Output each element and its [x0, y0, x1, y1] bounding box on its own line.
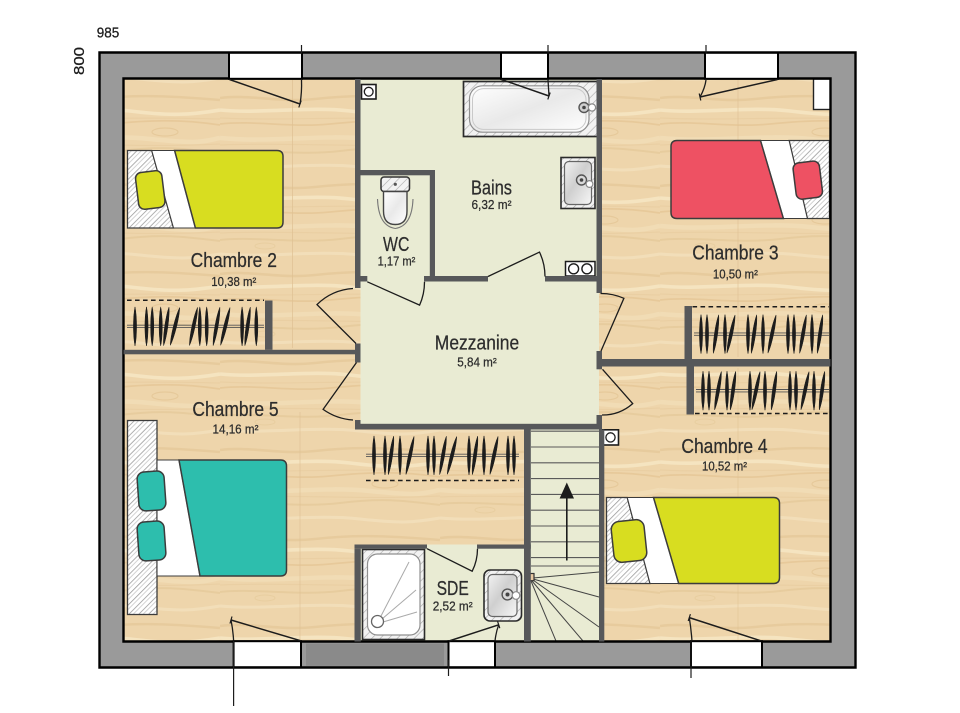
svg-text:10,52 m²: 10,52 m²: [702, 458, 748, 473]
svg-text:Chambre 3: Chambre 3: [692, 241, 778, 264]
svg-text:Chambre 4: Chambre 4: [681, 435, 767, 458]
svg-text:6,32 m²: 6,32 m²: [472, 197, 513, 212]
svg-text:10,38 m²: 10,38 m²: [211, 274, 257, 289]
svg-text:10,50 m²: 10,50 m²: [713, 266, 759, 281]
svg-text:985: 985: [97, 25, 120, 42]
svg-text:SDE: SDE: [437, 577, 469, 600]
svg-text:14,16 m²: 14,16 m²: [213, 421, 260, 436]
svg-text:Chambre 2: Chambre 2: [191, 249, 277, 272]
svg-text:5,84 m²: 5,84 m²: [457, 355, 497, 370]
svg-text:1,17 m²: 1,17 m²: [378, 254, 416, 269]
svg-text:2,52 m²: 2,52 m²: [433, 598, 474, 613]
svg-text:Chambre 5: Chambre 5: [192, 398, 278, 421]
svg-text:Mezzanine: Mezzanine: [435, 331, 519, 354]
svg-text:Bains: Bains: [471, 177, 512, 200]
svg-text:800: 800: [71, 47, 88, 75]
